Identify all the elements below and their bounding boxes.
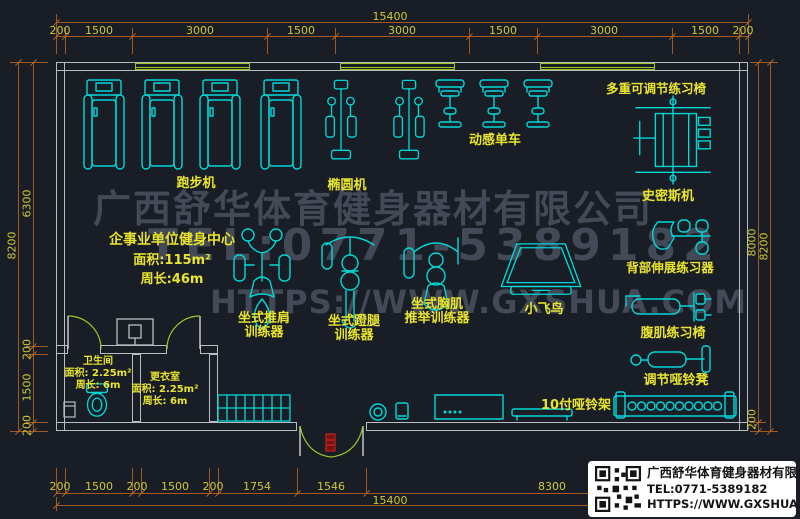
dim-ext-bottom	[366, 468, 367, 494]
dumbbell-rack-icon	[612, 390, 738, 424]
label-dumbbell-rack: 10付哑铃架	[526, 399, 626, 413]
dim-ext-top	[335, 28, 336, 54]
dim-top-seg: 3000	[178, 24, 222, 37]
spin-bike-icon	[522, 78, 554, 136]
spin-bike-icon	[478, 78, 510, 136]
window-strip	[540, 63, 655, 70]
dim-bottom-seg: 1546	[309, 480, 353, 493]
window-strip	[340, 63, 455, 70]
label-ab-chair: 腹肌练习椅	[633, 327, 713, 341]
wall-rooms-top-c	[200, 345, 218, 354]
toilet-perimeter: 周长: 6m	[63, 380, 133, 392]
dim-ext-left	[26, 62, 48, 63]
dim-ext-bottom	[297, 468, 298, 494]
entrance-marker	[326, 434, 335, 451]
appliance-icon	[395, 402, 409, 424]
dim-ext-top	[672, 28, 673, 54]
changing-door	[167, 316, 200, 349]
wall-rooms-top-b	[100, 345, 167, 354]
dim-bottom-seg: 200	[191, 480, 235, 493]
wall-bottom-left	[56, 422, 297, 431]
dim-top-seg: 1500	[481, 24, 525, 37]
dim-top-total: 15400	[355, 10, 425, 23]
changing-area: 面积: 2.25m²	[130, 384, 200, 396]
toilet-name: 卫生间	[63, 356, 133, 368]
dim-ext-top	[469, 28, 470, 54]
treadmill-icon	[258, 78, 304, 178]
label-leg-press: 坐式蹬腿 训练器	[314, 315, 394, 344]
label-spin-bike: 动感单车	[455, 134, 535, 148]
label-dumbbell-bench: 调节哑铃凳	[636, 374, 716, 388]
gym-info-perimeter: 周长:46m	[90, 268, 254, 287]
dim-bottom-total: 15400	[355, 494, 425, 507]
label-line: 推举训练器	[387, 312, 487, 326]
water-cooler-icon	[368, 403, 388, 425]
changing-name: 更衣室	[130, 372, 200, 384]
desk-icon	[434, 394, 504, 424]
elliptical-icon	[324, 78, 358, 168]
dim-bottom-seg: 1754	[235, 480, 279, 493]
elliptical-icon	[392, 78, 426, 168]
dim-right-bottom: 200	[746, 402, 759, 438]
dim-right-outer: 8200	[758, 229, 771, 265]
wall-rooms-top-a	[56, 345, 68, 354]
floor-plan-canvas: 广西舒华体育健身器材有限公司 TEL:0771-5389182 HTTPS://…	[0, 0, 800, 519]
ab-chair-icon	[622, 290, 714, 328]
changing-label-block: 更衣室 面积: 2.25m² 周长: 6m	[130, 372, 200, 408]
bin	[64, 402, 75, 417]
toilet-door	[68, 316, 101, 349]
dim-top-seg: 1500	[279, 24, 323, 37]
title-block: 广西舒华体育健身器材有限公司 TEL:0771-5389182 HTTPS://…	[588, 461, 796, 517]
label-elliptical: 椭圆机	[307, 179, 387, 193]
toilet-area: 面积: 2.25m²	[63, 368, 133, 380]
label-shoulder-press: 坐式推肩 训练器	[224, 312, 304, 341]
dim-top-seg: 1500	[77, 24, 121, 37]
label-chest-press: 坐式胸肌 推举训练器	[387, 298, 487, 327]
dim-bottom-seg: 8300	[530, 480, 574, 493]
label-multi-chair: 多重可调节练习椅	[598, 82, 714, 96]
treadmill-icon	[197, 78, 243, 178]
gym-info-area: 面积:115m²	[90, 249, 254, 268]
label-fly-bird: 小飞鸟	[514, 303, 574, 317]
label-back-extension: 背部伸展练习器	[618, 261, 722, 275]
title-block-company: 广西舒华体育健身器材有限公司	[647, 465, 800, 482]
dim-left-seg: 200	[21, 408, 34, 444]
gym-info-block: 企事业单位健身中心 面积:115m² 周长:46m	[90, 229, 254, 287]
label-treadmill: 跑步机	[156, 177, 236, 191]
changing-perimeter: 周长: 6m	[130, 396, 200, 408]
entrance-doors	[300, 426, 363, 457]
treadmill-icon	[81, 78, 127, 178]
dim-top-seg: 3000	[582, 24, 626, 37]
dim-left-seg: 200	[21, 332, 34, 368]
gym-info-title: 企事业单位健身中心	[90, 229, 254, 249]
dim-top-seg: 200	[721, 24, 765, 37]
title-block-tel: TEL:0771-5389182	[647, 482, 800, 498]
dim-ext-top	[537, 28, 538, 54]
dim-top-seg: 200	[38, 24, 82, 37]
fly-bird-icon	[498, 240, 584, 306]
lockers-grid	[218, 395, 290, 421]
smith-machine-icon	[631, 94, 715, 190]
treadmill-icon	[139, 78, 185, 178]
spin-bike-icon	[434, 78, 466, 136]
title-block-url: HTTPS://WWW.GXSHUA.COM	[647, 497, 800, 513]
qr-code	[595, 466, 641, 512]
label-smith: 史密斯机	[628, 190, 708, 204]
dim-left-seg: 6300	[21, 186, 34, 222]
dim-left-seg: 1500	[21, 370, 34, 406]
dim-ext-top	[132, 28, 133, 54]
wall-changing-right	[209, 354, 218, 422]
dim-bottom-seg: 200	[38, 480, 82, 493]
dim-left-outer: 8200	[6, 228, 19, 264]
dim-top-seg: 3000	[380, 24, 424, 37]
dim-ext-top	[267, 28, 268, 54]
back-extension-icon	[648, 218, 714, 262]
window-strip	[135, 63, 250, 70]
wall-fixture	[117, 319, 153, 345]
toilet-label-block: 卫生间 面积: 2.25m² 周长: 6m	[63, 356, 133, 392]
label-line: 训练器	[224, 326, 304, 340]
label-line: 训练器	[314, 329, 394, 343]
